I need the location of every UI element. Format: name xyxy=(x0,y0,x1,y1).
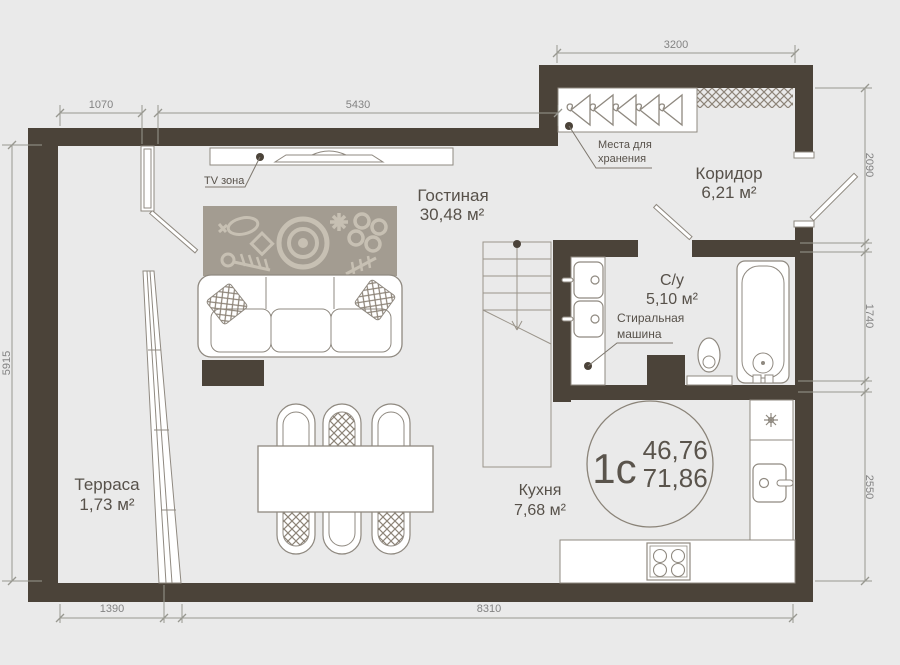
corridor-area: 6,21 м² xyxy=(701,183,756,203)
dining-set xyxy=(258,404,433,554)
stairs-start-dot xyxy=(513,240,521,248)
corridor-fixtures xyxy=(558,88,793,168)
dim-5915: 5915 xyxy=(1,351,13,375)
dim-5430: 5430 xyxy=(346,99,370,111)
plan-badge: 1с 46,76 71,86 xyxy=(592,436,707,492)
rug xyxy=(203,206,397,276)
dim-1740: 1740 xyxy=(863,304,875,328)
coffee-table xyxy=(202,360,264,386)
dim-2550: 2550 xyxy=(863,475,875,499)
dining-table xyxy=(258,446,433,512)
sofa xyxy=(198,275,402,357)
bathtub-icon xyxy=(737,261,789,383)
terrace-glazing xyxy=(141,146,181,583)
bathroom-area: 5,10 м² xyxy=(646,291,698,309)
wardrobe xyxy=(558,88,697,132)
terrace-area: 1,73 м² xyxy=(79,495,134,515)
bathroom-door-opening xyxy=(638,239,692,258)
toilet-icon xyxy=(687,338,732,385)
total-area-value: 71,86 xyxy=(643,464,708,492)
dim-1390: 1390 xyxy=(100,603,124,615)
corridor-name: Коридор xyxy=(695,164,762,184)
bathroom-name: С/у xyxy=(660,272,684,290)
terrace-name: Терраса xyxy=(74,475,139,495)
doormat xyxy=(697,88,793,108)
dim-2090: 2090 xyxy=(863,153,875,177)
plan-drawing xyxy=(0,0,900,665)
stove-icon xyxy=(647,543,690,580)
dim-8310: 8310 xyxy=(477,603,501,615)
kitchen-area: 7,68 м² xyxy=(514,502,566,520)
living-room-area: 30,48 м² xyxy=(420,205,485,225)
plan-type: 1с xyxy=(592,448,636,490)
entrance-door-leaf[interactable] xyxy=(810,173,857,220)
storage-label: Места для хранения xyxy=(598,138,652,166)
living-room-name: Гостиная xyxy=(417,186,488,206)
snowflake-icon xyxy=(764,413,778,427)
living-area-value: 46,76 xyxy=(643,436,708,464)
washing-machine-label: Стиральная машина xyxy=(617,310,684,342)
terrace-door-leaf[interactable] xyxy=(150,210,198,252)
kitchen-name: Кухня xyxy=(519,482,562,500)
bathroom-door-leaf[interactable] xyxy=(654,205,692,240)
tv-zone-label: TV зона xyxy=(204,175,244,187)
floor-plan: Гостиная 30,48 м² Коридор 6,21 м² С/у 5,… xyxy=(0,0,900,665)
stairs xyxy=(483,240,551,467)
dim-1070: 1070 xyxy=(89,99,113,111)
plan-areas: 46,76 71,86 xyxy=(643,436,708,492)
dim-3200: 3200 xyxy=(664,39,688,51)
